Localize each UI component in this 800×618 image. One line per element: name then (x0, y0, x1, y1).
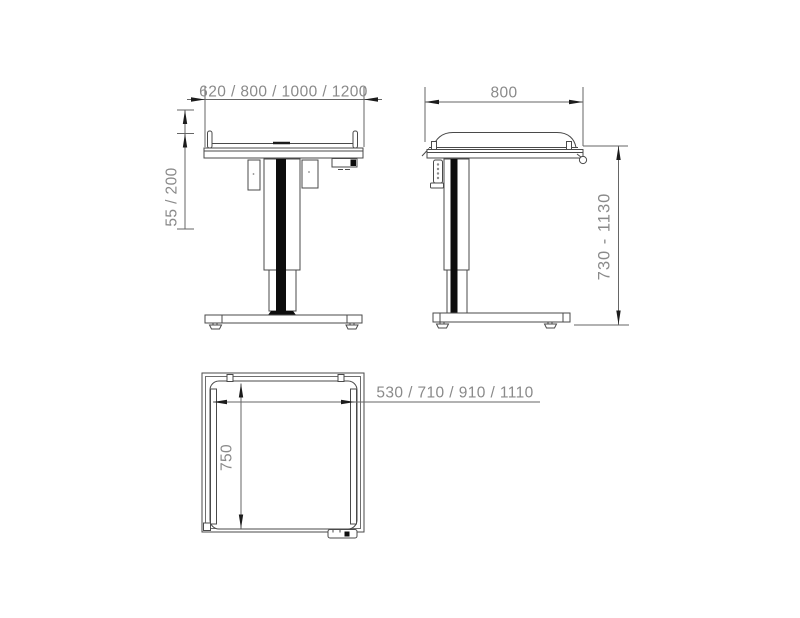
top-width-label: 530 / 710 / 910 / 1110 (376, 385, 533, 402)
side-height-arrow-up (616, 146, 620, 160)
front-left-motor-box (248, 160, 260, 190)
rail-height-arrow-2 (183, 134, 187, 148)
front-right-motor-box (302, 160, 318, 188)
top-right-tab (338, 375, 344, 382)
top-right-rail (351, 389, 357, 524)
side-height-arrow-down (616, 311, 620, 325)
top-depth-label: 750 (219, 444, 236, 471)
top-control-box-detail (345, 532, 350, 537)
side-tabletop-slab (427, 150, 583, 159)
front-left-foot (210, 323, 222, 329)
front-column-stripe (276, 159, 286, 311)
technical-drawing-canvas: 620 / 800 / 1000 / 1200 55 / 200 (0, 0, 800, 618)
side-hand-control-button-4 (437, 177, 439, 179)
side-crank-knob (579, 156, 586, 163)
side-base (433, 313, 570, 322)
rail-height-arrow-1 (183, 110, 187, 124)
front-right-rail-post (353, 131, 358, 148)
front-left-motor-dot (253, 173, 255, 175)
drawing-svg: 620 / 800 / 1000 / 1200 55 / 200 (0, 0, 800, 618)
side-depth-arrow-right (569, 100, 583, 104)
front-right-foot (346, 323, 358, 329)
side-hand-control-button-2 (437, 168, 439, 170)
side-view (422, 133, 587, 329)
side-right-rail-end (567, 142, 572, 150)
top-left-tab (227, 375, 233, 382)
side-hand-control-button-3 (437, 172, 439, 174)
side-column-stripe (451, 159, 458, 313)
side-left-rail-end (432, 142, 437, 150)
top-left-rail (211, 389, 217, 524)
side-mattress (434, 133, 577, 148)
side-depth-arrow-left (425, 100, 439, 104)
front-column-mount (268, 311, 296, 315)
side-depth-label: 800 (490, 85, 517, 102)
front-tabletop-slab (204, 148, 363, 158)
side-left-foot (437, 322, 449, 328)
front-base (205, 315, 362, 323)
side-hand-control-button-1 (437, 163, 439, 165)
front-view (204, 131, 363, 329)
side-hand-control-base (431, 183, 444, 188)
front-left-rail-post (208, 131, 213, 148)
front-width-label: 620 / 800 / 1000 / 1200 (199, 84, 368, 101)
dim-front-rail-height: 55 / 200 (164, 110, 195, 229)
front-control-unit-detail (351, 160, 357, 167)
side-right-foot (545, 322, 557, 328)
top-corner-detail (204, 523, 211, 531)
side-height-label: 730 - 1130 (596, 193, 614, 281)
dim-side-height: 730 - 1130 (574, 146, 629, 325)
front-rail-height-label: 55 / 200 (164, 167, 181, 226)
front-right-motor-dot (308, 171, 310, 173)
top-control-box (328, 530, 357, 539)
